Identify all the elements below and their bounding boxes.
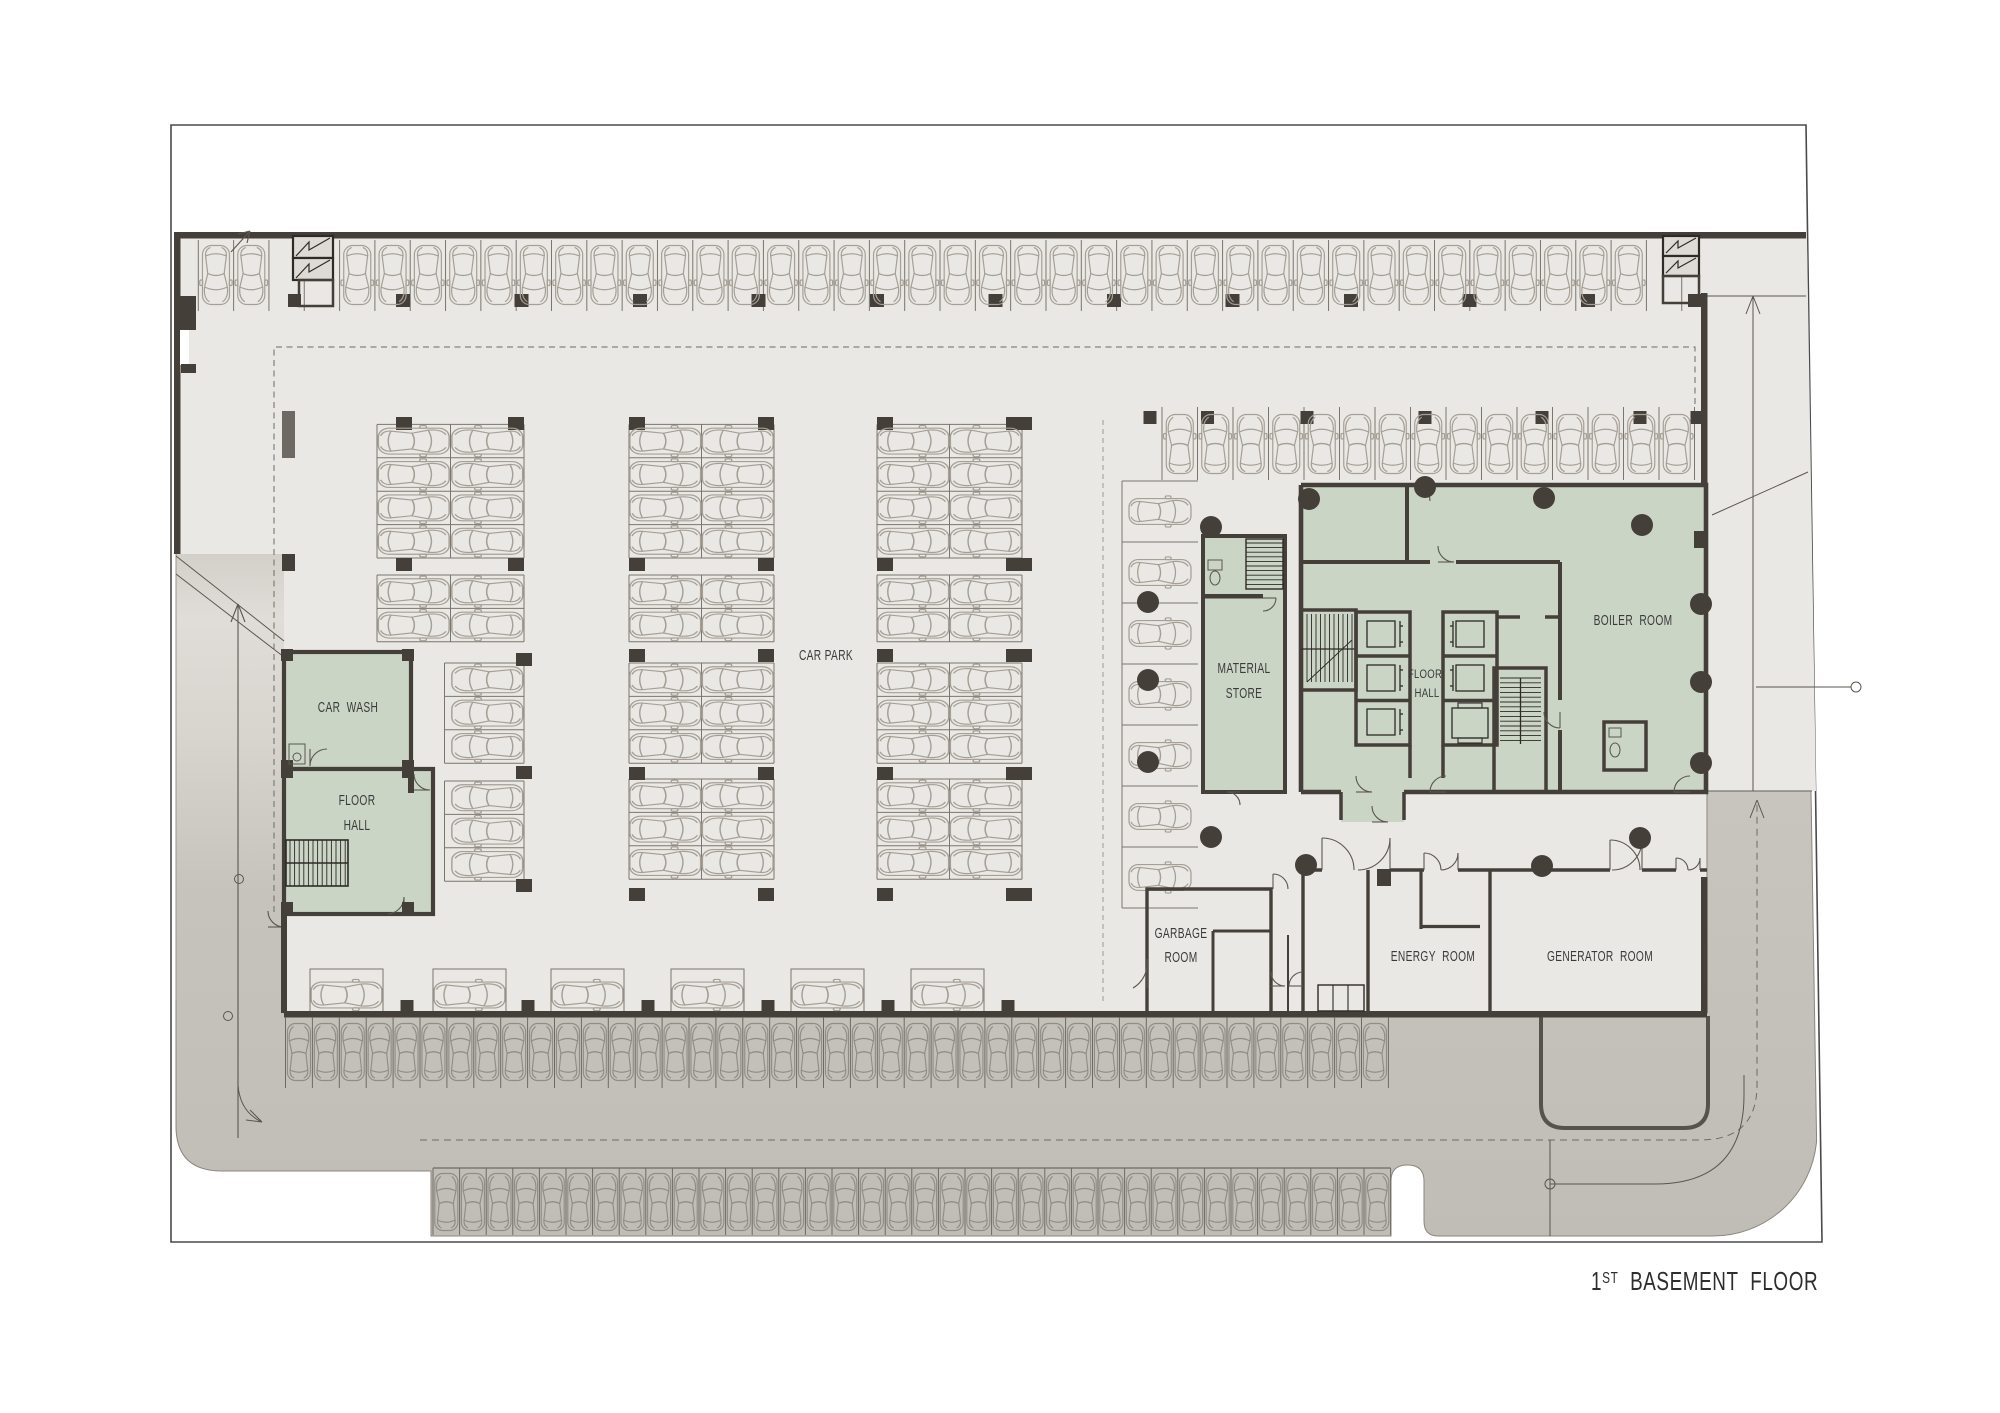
svg-text:CAR PARK: CAR PARK	[799, 646, 853, 664]
svg-text:STORE: STORE	[1226, 684, 1263, 702]
svg-text:BOILER ROOM: BOILER ROOM	[1594, 611, 1673, 629]
svg-text:CAR WASH: CAR WASH	[318, 698, 378, 716]
svg-text:1ST BASEMENT FLOOR: 1ST BASEMENT FLOOR	[1591, 1267, 1818, 1295]
svg-text:GARBAGE: GARBAGE	[1155, 924, 1208, 942]
svg-text:MATERIAL: MATERIAL	[1218, 659, 1271, 677]
svg-text:ROOM: ROOM	[1164, 948, 1197, 966]
svg-text:HALL: HALL	[1415, 687, 1440, 700]
svg-text:FLOOR: FLOOR	[1408, 668, 1442, 681]
svg-text:ENERGY ROOM: ENERGY ROOM	[1391, 947, 1475, 965]
svg-text:GENERATOR ROOM: GENERATOR ROOM	[1547, 947, 1653, 965]
svg-text:HALL: HALL	[344, 816, 371, 834]
svg-text:FLOOR: FLOOR	[339, 791, 376, 809]
